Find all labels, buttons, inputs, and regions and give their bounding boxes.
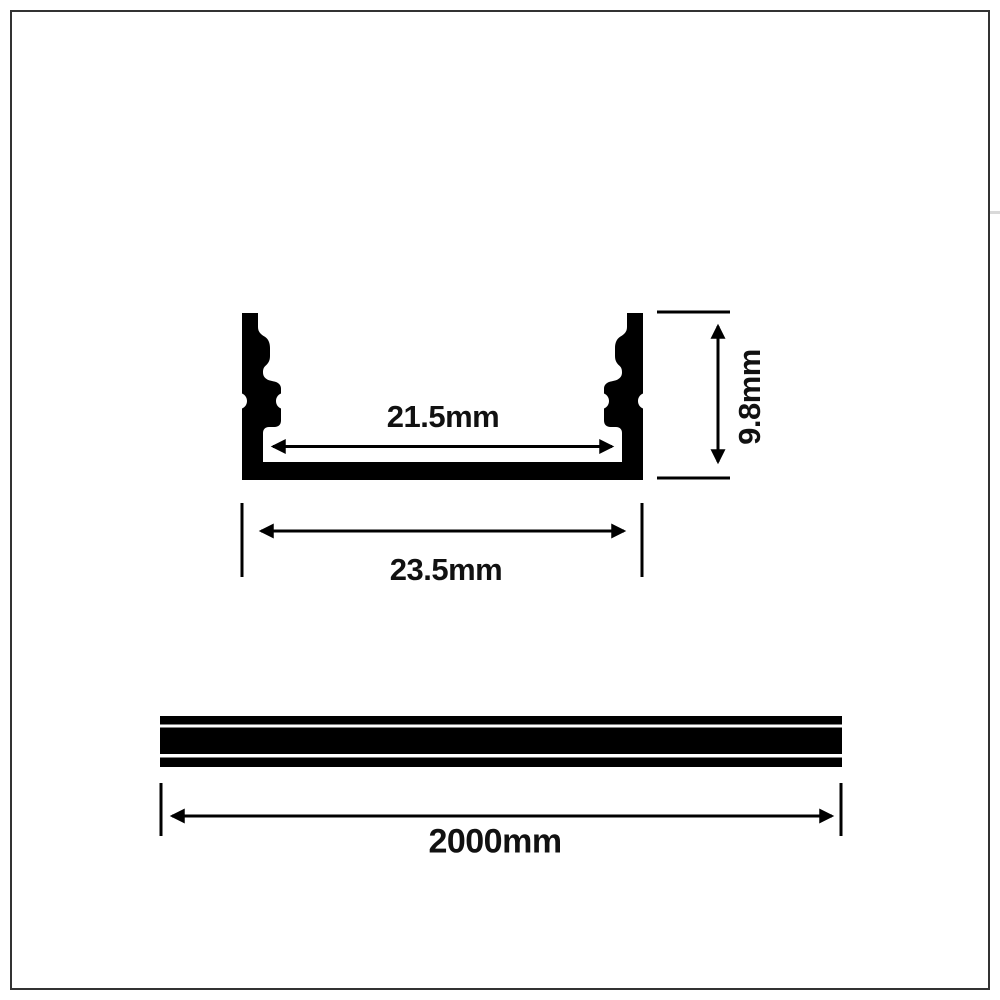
side-view-groove-line-top: [160, 725, 842, 728]
length-label: 2000mm: [428, 823, 561, 862]
outer-width-label: 23.5mm: [390, 552, 502, 588]
side-view-groove-line-bottom: [160, 754, 842, 758]
inner-width-label: 21.5mm: [387, 399, 499, 435]
profile-cross-section-shape: [242, 313, 643, 480]
profile-side-view-bar: [160, 716, 842, 767]
height-label: 9.8mm: [732, 349, 768, 445]
